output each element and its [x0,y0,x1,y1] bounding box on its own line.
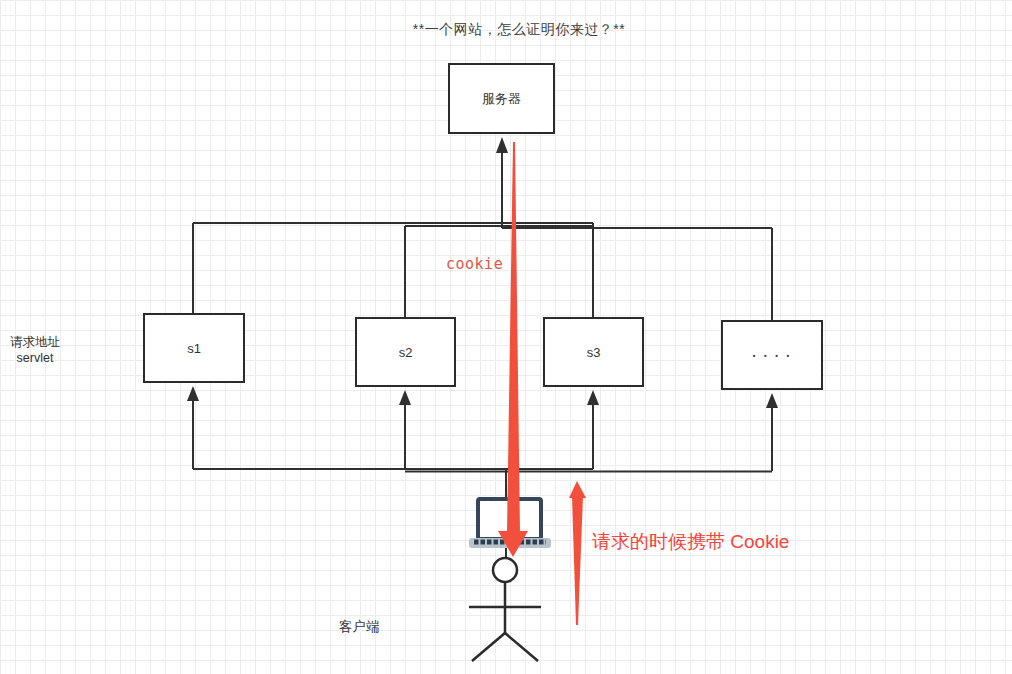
servlet-node-s2: s2 [355,317,456,387]
up-arrow-s4-head [766,393,778,408]
cookie-annotation: 请求的时候携带 Cookie [592,529,789,555]
server-node-label: 服务器 [482,90,521,108]
stick-figure-head [493,558,517,582]
stick-figure-icon [469,558,541,661]
up-arrow-s1-head [187,386,199,401]
arrow-to-server-head [496,137,508,153]
page-title: **一个网站，怎么证明你来过？** [369,21,669,39]
ellipsis-dots: ∙ ∙ ∙ ∙ [752,348,791,363]
up-arrow-s3-head [587,390,599,405]
red-down-arrow-shaft [507,142,520,533]
servlet-node-s3: s3 [543,317,644,387]
servlet-node-ellipsis: ∙ ∙ ∙ ∙ [721,320,823,390]
servlet-node-label: s3 [587,345,601,360]
red-up-arrow-head [569,481,586,498]
servlet-node-label: s2 [399,345,413,360]
request-address-line1: 请求地址 [0,334,70,350]
client-label: 客户端 [339,618,380,636]
up-arrow-s2-head [399,390,411,405]
diagram-canvas: **一个网站，怎么证明你来过？** 服务器 s1 s2 s3 ∙ ∙ ∙ ∙ 请… [0,0,1012,674]
servlet-node-s1: s1 [143,313,245,383]
servlet-node-label: s1 [187,341,201,356]
server-node: 服务器 [448,63,555,134]
cookie-label: cookie [446,255,503,273]
request-address-label: 请求地址 servlet [0,334,70,366]
request-address-line2: servlet [0,350,70,366]
red-up-arrow-shaft [572,496,583,625]
stick-figure-legs [472,633,538,661]
